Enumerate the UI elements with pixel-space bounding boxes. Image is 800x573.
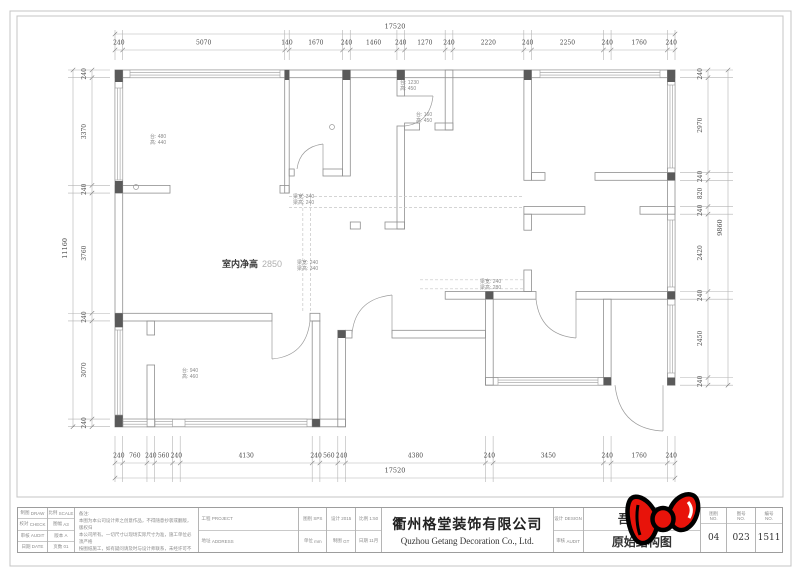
columns xyxy=(115,70,675,427)
ceiling-height-note: 室内净高2850 xyxy=(222,254,282,272)
beam-note-3: 梁宽: 240梁高: 280 xyxy=(480,279,501,291)
svg-text:240: 240 xyxy=(665,453,677,460)
svg-text:1760: 1760 xyxy=(632,453,647,460)
svg-text:240: 240 xyxy=(602,453,614,460)
drawing-sheet: 2405070140167024014602401270240222024022… xyxy=(0,0,800,573)
number-col-dwg: 图号NO. 023 xyxy=(726,508,755,552)
window-note-bath: 台: 160高: 450 xyxy=(416,112,432,124)
svg-text:11160: 11160 xyxy=(61,238,69,259)
svg-text:240: 240 xyxy=(336,453,348,460)
svg-text:240: 240 xyxy=(697,375,704,387)
svg-text:240: 240 xyxy=(484,453,496,460)
svg-text:240: 240 xyxy=(171,453,183,460)
svg-text:240: 240 xyxy=(113,453,125,460)
walls xyxy=(115,70,675,427)
svg-text:3450: 3450 xyxy=(541,453,556,460)
svg-text:240: 240 xyxy=(81,311,88,323)
svg-text:240: 240 xyxy=(310,453,322,460)
svg-text:3760: 3760 xyxy=(81,245,88,260)
svg-text:240: 240 xyxy=(697,204,704,216)
title-block-notes: 备注: 本图为本公司设计师之创意作品，不得随意抄袭或翻版，版权归 本公司所有。一… xyxy=(74,508,198,552)
svg-text:240: 240 xyxy=(443,40,455,47)
svg-text:3070: 3070 xyxy=(81,362,88,377)
title-block-col-design: 设计 2015 制图 GT xyxy=(326,508,355,552)
svg-text:240: 240 xyxy=(697,68,704,80)
svg-text:1270: 1270 xyxy=(417,40,432,47)
window-note-living: 台: 480高: 440 xyxy=(150,134,166,146)
title-block-col-sign: 设计 DESIGN 审核 AUDIT xyxy=(553,508,583,552)
svg-text:240: 240 xyxy=(602,40,614,47)
ceiling-height-value: 2850 xyxy=(262,259,282,269)
svg-text:560: 560 xyxy=(323,453,335,460)
svg-text:5070: 5070 xyxy=(196,40,211,47)
svg-text:560: 560 xyxy=(158,453,170,460)
bow-knot xyxy=(653,508,674,530)
svg-text:240: 240 xyxy=(81,183,88,195)
svg-text:760: 760 xyxy=(129,453,141,460)
windows xyxy=(115,70,675,427)
svg-text:240: 240 xyxy=(81,68,88,80)
svg-text:3370: 3370 xyxy=(81,124,88,139)
window-note-kitchen: 台: 1230高: 450 xyxy=(400,80,419,92)
svg-text:240: 240 xyxy=(145,453,157,460)
svg-text:1760: 1760 xyxy=(632,40,647,47)
title-block-col-ratio: 比例 1:50 日期 11月 xyxy=(355,508,381,552)
svg-text:240: 240 xyxy=(665,40,677,47)
title-block-col-type: 图别 SPS 单位 mm xyxy=(298,508,326,552)
svg-text:140: 140 xyxy=(281,40,293,47)
ceiling-height-label: 室内净高 xyxy=(222,259,258,269)
title-block-col-project-info: 工程 PROJECT 地址 ADDRESS xyxy=(198,508,299,552)
svg-text:4130: 4130 xyxy=(239,453,254,460)
svg-text:2450: 2450 xyxy=(697,331,704,346)
title-block-col-admin: 制图 DRAW 校对 CHECK 审核 AUDIT 日期 DATE xyxy=(18,508,47,552)
svg-text:9860: 9860 xyxy=(716,219,724,236)
svg-text:17520: 17520 xyxy=(385,23,406,31)
svg-text:240: 240 xyxy=(113,40,125,47)
company-name-cn: 衢州格堂装饰有限公司 xyxy=(392,514,542,534)
svg-text:240: 240 xyxy=(395,40,407,47)
notes-title: 备注: xyxy=(79,510,194,517)
beam-note-2: 梁宽: 240梁高: 340 xyxy=(297,260,318,272)
svg-text:17520: 17520 xyxy=(385,467,406,475)
title-block-col-scale: 比例 SCALE 图幅 A3 版本 A 页数 01 xyxy=(47,508,74,552)
svg-text:240: 240 xyxy=(341,40,353,47)
number-col-job: 编号NO. 1511 xyxy=(755,508,782,552)
job-number: 1511 xyxy=(756,523,782,552)
svg-text:2420: 2420 xyxy=(697,245,704,260)
company-name-en: Quzhou Getang Decoration Co., Ltd. xyxy=(401,536,534,546)
beam-note-1: 梁宽: 340梁高: 240 xyxy=(293,194,314,206)
svg-text:4380: 4380 xyxy=(408,453,423,460)
svg-text:820: 820 xyxy=(697,187,704,199)
svg-text:240: 240 xyxy=(697,171,704,183)
svg-text:1460: 1460 xyxy=(366,40,381,47)
svg-text:2250: 2250 xyxy=(560,40,575,47)
dwg-number: 023 xyxy=(727,523,755,552)
company-cell: 衢州格堂装饰有限公司 Quzhou Getang Decoration Co.,… xyxy=(381,508,553,552)
svg-text:240: 240 xyxy=(697,289,704,301)
svg-text:2220: 2220 xyxy=(481,40,496,47)
svg-text:240: 240 xyxy=(522,40,534,47)
svg-text:1670: 1670 xyxy=(308,40,323,47)
svg-text:2970: 2970 xyxy=(697,117,704,132)
red-bow-sticker xyxy=(605,483,705,561)
svg-text:240: 240 xyxy=(81,417,88,429)
window-note-bedroom: 台: 940高: 460 xyxy=(182,368,198,380)
